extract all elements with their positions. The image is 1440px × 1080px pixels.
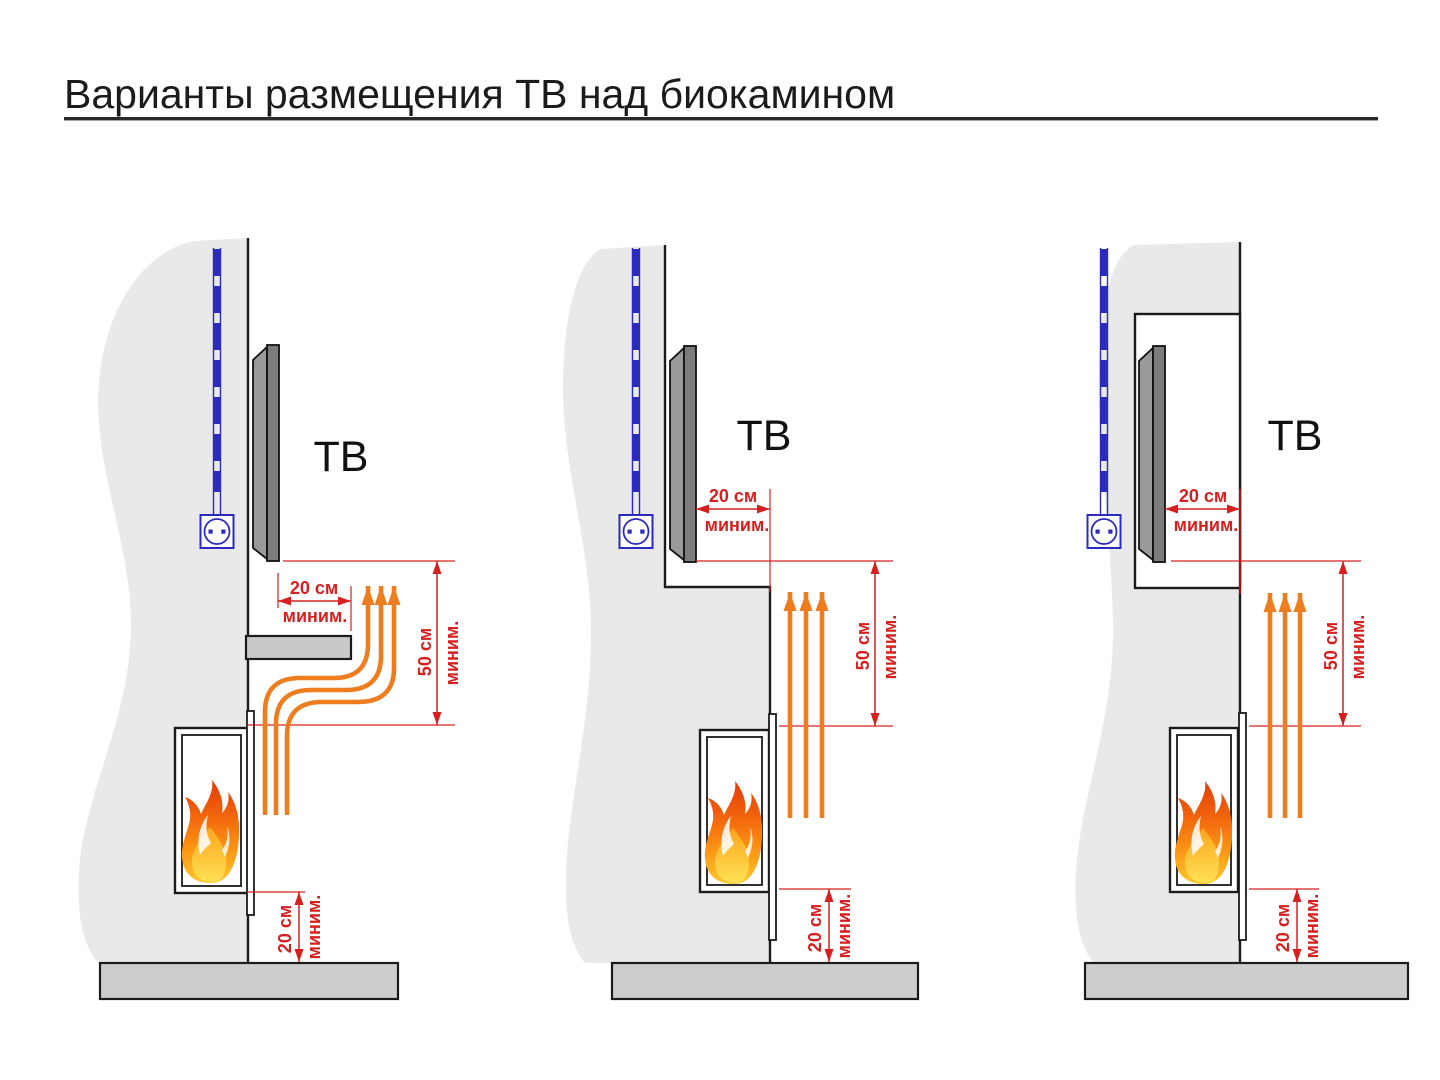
floor <box>612 963 918 999</box>
protective-shelf <box>246 636 351 659</box>
fireplace <box>175 711 254 915</box>
floor <box>100 963 398 999</box>
dim-qualifier: миним. <box>304 895 324 960</box>
dim-qualifier: миним. <box>1174 515 1239 535</box>
fireplace-glass-panel <box>247 711 254 915</box>
dim-qualifier: миним. <box>1302 894 1322 959</box>
dimension-floor-clearance: 20 см миним. <box>779 889 854 962</box>
dim-value: 50 см <box>853 622 873 670</box>
tv-side-view <box>1139 346 1165 562</box>
dimension-shelf-depth: 20 см миним. <box>278 573 351 631</box>
tv-side-view <box>670 346 696 562</box>
heat-flow-arrows <box>790 592 822 818</box>
dimension-floor-clearance: 20 см миним. <box>247 892 324 962</box>
tv-label: ТВ <box>737 412 792 460</box>
dim-value: 20 см <box>1273 904 1293 952</box>
heat-flow-arrows <box>1270 593 1300 818</box>
dim-value: 20 см <box>290 578 338 598</box>
fireplace-glass-panel <box>769 714 776 940</box>
dim-qualifier: миним. <box>834 894 854 959</box>
page-header: Варианты размещения ТВ над биокамином <box>64 71 1378 120</box>
page-title: Варианты размещения ТВ над биокамином <box>64 71 895 117</box>
dim-value: 50 см <box>1321 622 1341 670</box>
variant-2-ledge: ТВ 20 см миним. 50 см миним. 20 см миним… <box>563 245 918 999</box>
dim-qualifier: миним. <box>1348 615 1368 680</box>
dim-value: 20 см <box>275 905 295 953</box>
fireplace-glass-panel <box>1239 713 1246 940</box>
dim-value: 50 см <box>415 628 435 676</box>
dim-qualifier: миним. <box>880 615 900 680</box>
infographic-canvas: Варианты размещения ТВ над биокамином ТВ… <box>0 0 1440 1080</box>
variant-3-niche: ТВ 20 см миним. 50 см миним. 20 см миним… <box>1075 242 1408 999</box>
tv-label: ТВ <box>314 433 369 481</box>
tv-label: ТВ <box>1268 412 1323 460</box>
dim-qualifier: миним. <box>442 621 462 686</box>
dim-value: 20 см <box>805 904 825 952</box>
variant-1-shelf: ТВ 20 см миним. 50 см миним. 20 см миним… <box>78 238 462 999</box>
tv-side-view <box>253 345 279 561</box>
title-underline <box>64 117 1378 120</box>
dim-qualifier: миним. <box>705 515 770 535</box>
dimension-floor-clearance: 20 см миним. <box>1249 889 1322 962</box>
floor <box>1085 963 1408 999</box>
dim-value: 20 см <box>1179 486 1227 506</box>
dim-qualifier: миним. <box>283 606 348 626</box>
dim-value: 20 см <box>709 486 757 506</box>
dimension-recess-depth: 20 см миним. <box>696 486 770 592</box>
